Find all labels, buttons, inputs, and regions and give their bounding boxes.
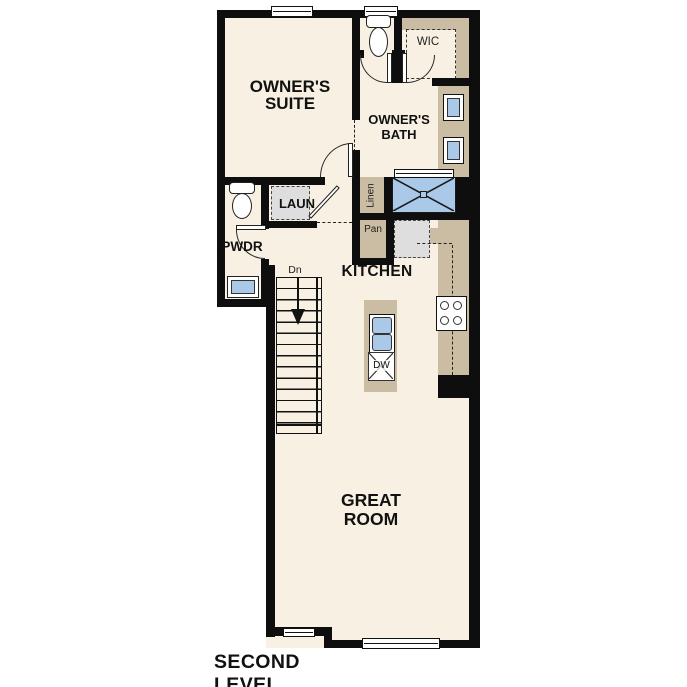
plan-caption: SECOND LEVEL bbox=[214, 651, 364, 687]
burner bbox=[453, 301, 462, 310]
hall-cased-opening bbox=[317, 222, 352, 223]
wall-segment bbox=[469, 10, 480, 648]
sink-basin bbox=[231, 280, 255, 294]
toilet-icon bbox=[232, 193, 252, 219]
burner bbox=[440, 301, 449, 310]
counter-dash-h bbox=[417, 243, 452, 244]
wall-segment bbox=[217, 10, 479, 18]
sink-basin bbox=[447, 98, 460, 117]
wall-segment bbox=[217, 10, 225, 307]
linen-label: Linen bbox=[366, 171, 377, 221]
powder-sink-icon bbox=[227, 276, 259, 298]
refrigerator-outline bbox=[394, 220, 430, 258]
wic-label: WIC bbox=[404, 36, 452, 48]
window bbox=[283, 628, 315, 637]
burner bbox=[440, 316, 449, 325]
window bbox=[271, 6, 313, 17]
window bbox=[362, 638, 440, 649]
laundry-label: LAUN bbox=[272, 196, 322, 211]
island-sink-icon bbox=[369, 314, 395, 354]
door-leaf bbox=[348, 143, 353, 177]
shower-x-lines bbox=[393, 178, 454, 211]
sink-basin bbox=[372, 334, 392, 351]
sink-basin bbox=[447, 141, 460, 160]
wall-segment bbox=[432, 78, 470, 86]
shower-icon bbox=[392, 177, 456, 213]
wall-segment bbox=[352, 10, 360, 120]
cooktop-icon bbox=[436, 296, 467, 331]
wall-segment bbox=[386, 220, 394, 258]
wall-segment bbox=[438, 375, 480, 398]
wall-segment bbox=[261, 221, 317, 228]
door-leaf bbox=[236, 225, 266, 230]
door-leaf bbox=[402, 53, 407, 83]
pantry-label: Pan bbox=[360, 224, 386, 235]
door-leaf bbox=[387, 53, 392, 83]
shower-glass-panel bbox=[394, 169, 454, 178]
floor-plan: DW OWNER'S SUITE OWNER'S BATH WIC LAUN P… bbox=[0, 0, 687, 687]
bath-cased-opening bbox=[354, 120, 355, 152]
wall-segment bbox=[352, 150, 360, 265]
owners-bath-label: OWNER'S BATH bbox=[360, 113, 438, 142]
stairs-direction-line bbox=[297, 278, 299, 310]
sink-icon bbox=[443, 94, 464, 121]
sink-basin bbox=[372, 317, 392, 334]
wall-segment bbox=[384, 177, 392, 215]
stairs-bottom-line bbox=[276, 424, 322, 426]
toilet-icon bbox=[369, 27, 388, 57]
stairs-down-label: Dn bbox=[280, 264, 310, 276]
powder-label: PWDR bbox=[217, 239, 267, 254]
owners-suite-label: OWNER'S SUITE bbox=[230, 78, 350, 112]
burner bbox=[453, 316, 462, 325]
wic-shelf-right bbox=[456, 28, 469, 80]
sink-icon bbox=[443, 137, 464, 164]
great-room-label: GREAT ROOM bbox=[331, 491, 411, 529]
kitchen-label: KITCHEN bbox=[336, 263, 418, 281]
dishwasher-icon: DW bbox=[368, 352, 395, 381]
wall-segment bbox=[266, 265, 275, 637]
down-arrow-icon bbox=[291, 309, 305, 325]
stairs-inner-rail bbox=[316, 277, 318, 434]
dishwasher-label: DW bbox=[369, 360, 394, 371]
